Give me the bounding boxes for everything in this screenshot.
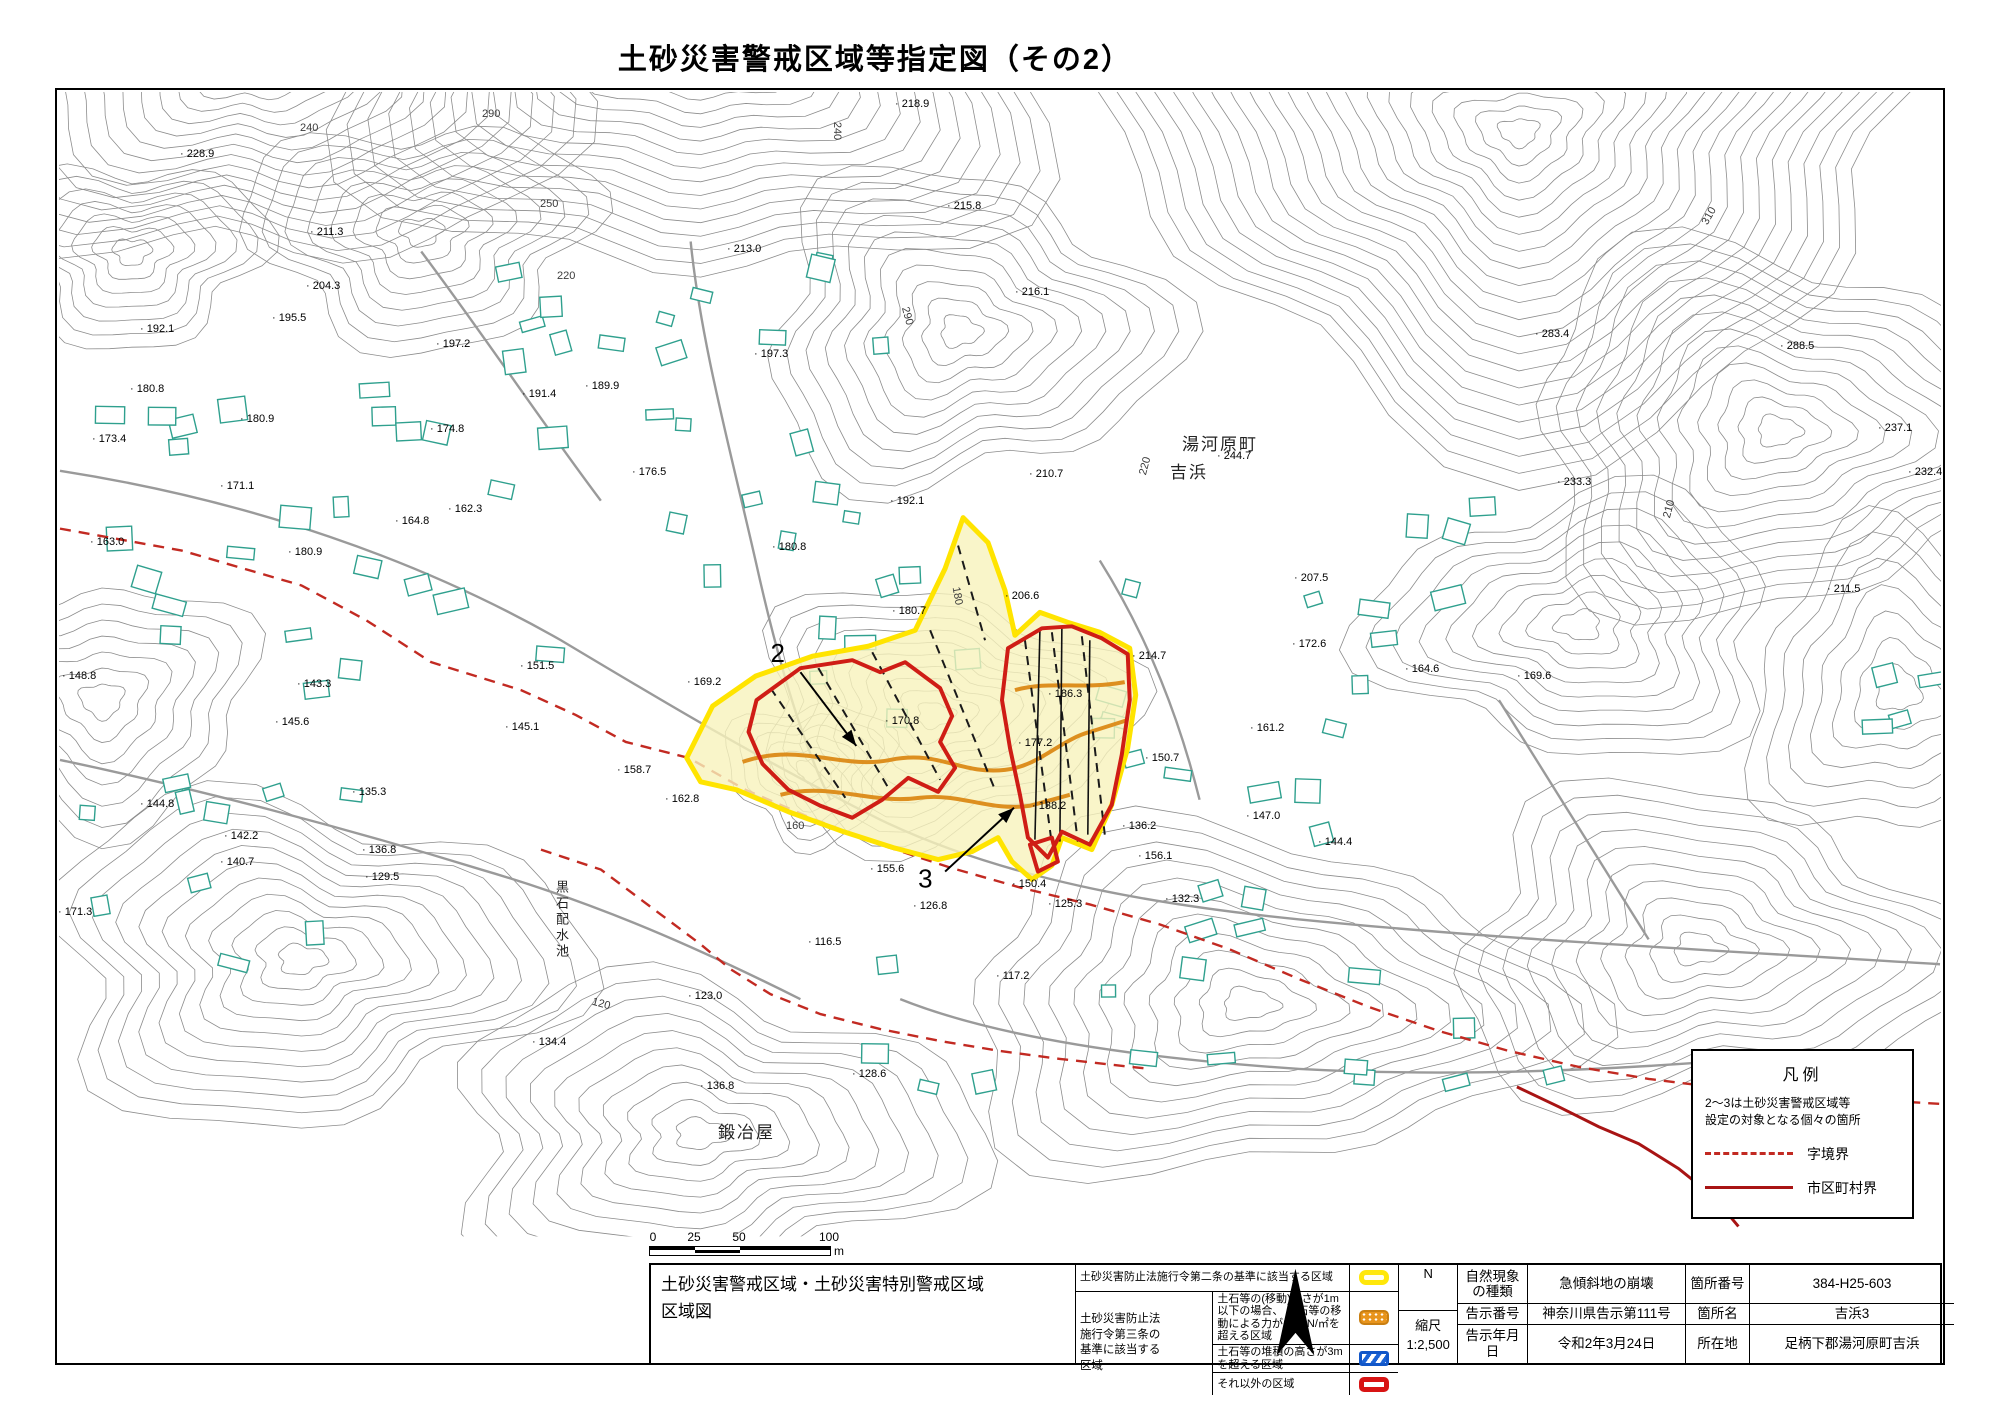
callout-number-2: 2 — [770, 640, 784, 668]
scale-tick-25: 25 — [687, 1230, 700, 1244]
municipal-boundary-label: 市区町村界 — [1807, 1178, 1877, 1198]
scale-bar-unit: m — [834, 1244, 844, 1258]
map-frame: 23 · 228.9· 211.3· 204.3· 195.5· 192.1· … — [55, 88, 1945, 1365]
scale-tick-100: 100 — [819, 1230, 839, 1244]
legend-title: 凡例 — [1705, 1061, 1900, 1085]
other-zone-label: それ以外の区域 — [1213, 1373, 1350, 1395]
scale-bar: 0 25 50 100 m — [649, 1230, 869, 1264]
solid-red-line-sample — [1705, 1186, 1793, 1189]
dashed-red-line-sample — [1705, 1152, 1793, 1155]
map-legend-box: 凡例 2～3は土砂災害警戒区域等 設定の対象となる個々の箇所 字境界 市区町村界 — [1691, 1049, 1914, 1219]
callout-number-3: 3 — [918, 866, 932, 894]
compass-and-scale-cell: N 縮尺 1:2,500 — [1398, 1265, 1457, 1363]
sheet-info-block: 土砂災害警戒区域・土砂災害特別警戒区域 区域図 土砂災害防止法施行令第二条の基準… — [649, 1263, 1942, 1365]
scale-bar-tick-labels: 0 25 50 100 — [649, 1230, 869, 1244]
aza-boundary-label: 字境界 — [1807, 1144, 1849, 1164]
north-arrow-icon — [651, 1265, 1940, 1363]
page-title: 土砂災害警戒区域等指定図（その2） — [460, 36, 1290, 78]
legend-item-aza-boundary: 字境界 — [1705, 1144, 1900, 1164]
topographic-map-canvas: 23 — [57, 90, 1943, 1363]
red-outline-zone-swatch — [1359, 1377, 1389, 1392]
scale-tick-50: 50 — [732, 1230, 745, 1244]
legend-item-municipal-boundary: 市区町村界 — [1705, 1178, 1900, 1198]
scale-bar-graphic — [649, 1246, 831, 1256]
north-arrow: N — [1399, 1265, 1457, 1311]
legend-note: 2～3は土砂災害警戒区域等 設定の対象となる個々の箇所 — [1705, 1095, 1900, 1130]
other-zone-swatch-cell — [1350, 1373, 1399, 1395]
hazard-map-sheet: 土砂災害警戒区域等指定図（その2） 23 · 228.9· 211.3· 204… — [0, 0, 2000, 1414]
scale-tick-0: 0 — [650, 1230, 657, 1244]
